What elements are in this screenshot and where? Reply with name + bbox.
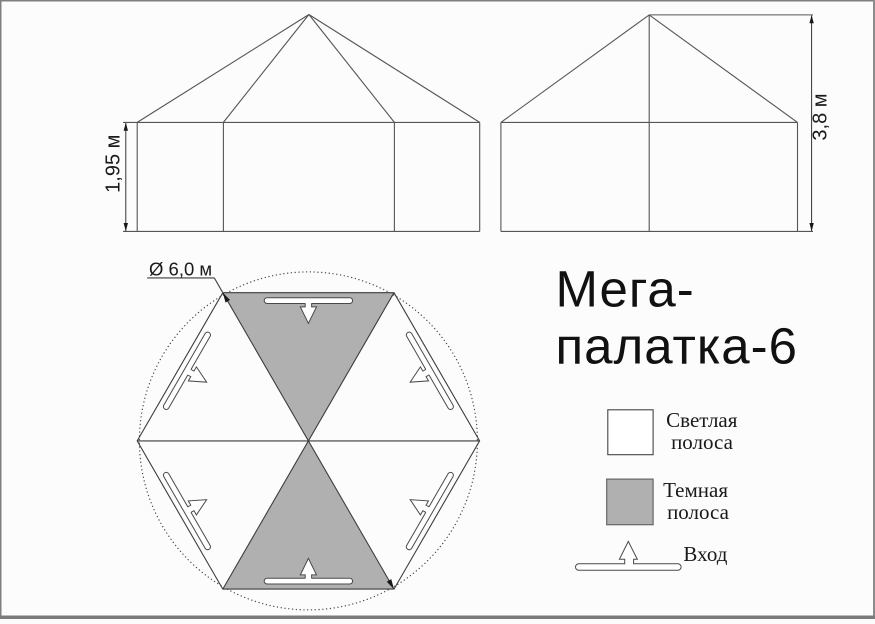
svg-text:Светлая: Светлая bbox=[666, 408, 738, 432]
svg-text:Темная: Темная bbox=[663, 478, 728, 502]
svg-text:3,8 м: 3,8 м bbox=[809, 93, 831, 140]
svg-text:Мега-: Мега- bbox=[556, 261, 695, 318]
svg-text:полоса: полоса bbox=[667, 500, 730, 524]
svg-text:палатка-6: палатка-6 bbox=[556, 318, 798, 375]
svg-text:полоса: полоса bbox=[671, 430, 734, 454]
svg-text:Вход: Вход bbox=[683, 542, 727, 566]
svg-text:1,95 м: 1,95 м bbox=[103, 135, 125, 193]
svg-text:Ø 6,0 м: Ø 6,0 м bbox=[149, 259, 212, 280]
